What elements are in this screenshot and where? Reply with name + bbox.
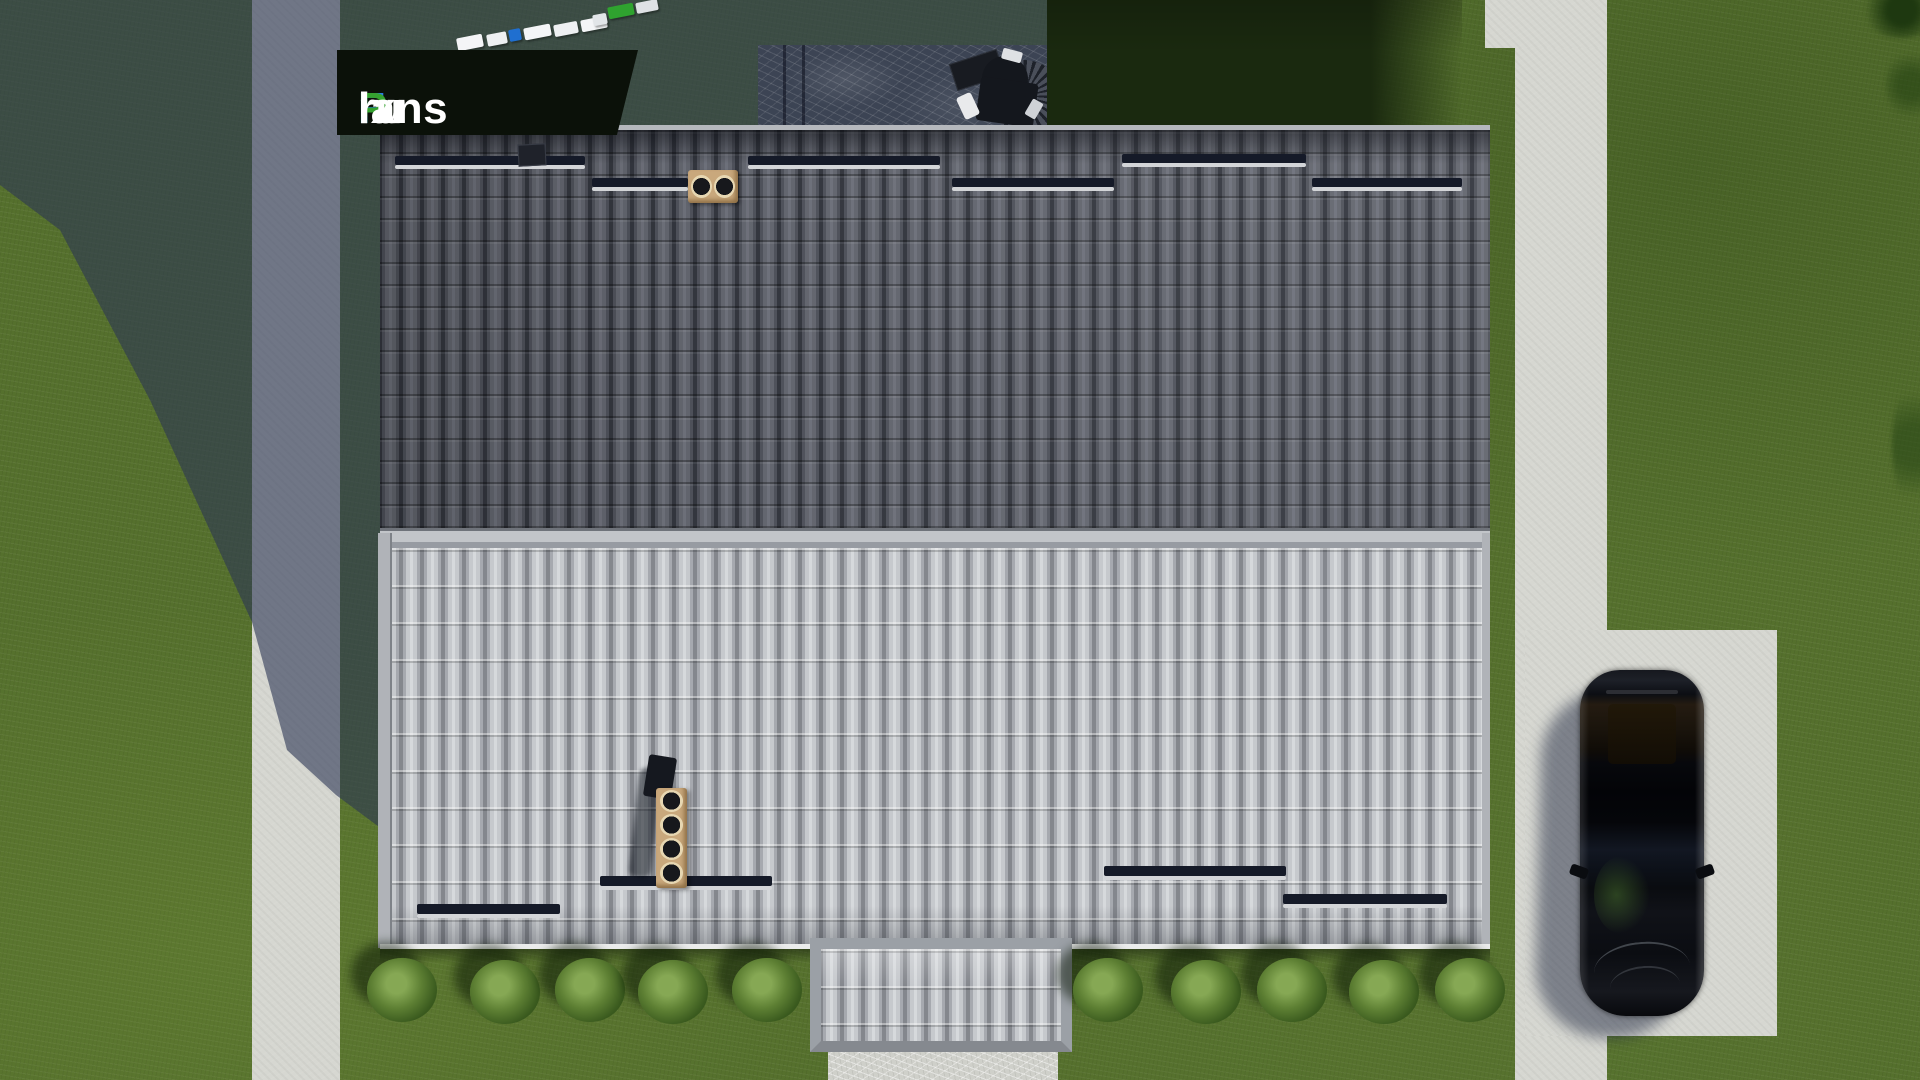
watermark-segment: ru (358, 84, 403, 134)
porch-extension-roof (810, 938, 1072, 1052)
snow-rail (592, 187, 688, 191)
roof-vent (517, 143, 546, 166)
car-windshield-reflection (1594, 856, 1650, 934)
snow-rail-shadow (592, 178, 688, 187)
snow-rail-shadow (417, 904, 560, 914)
snow-rail-shadow (1104, 866, 1286, 876)
path-stub-top-right (1485, 0, 1607, 48)
chimney-lower (656, 788, 687, 888)
chimney-upper (688, 170, 738, 203)
car-rear-window (1608, 704, 1676, 764)
roof-fascia-left (378, 533, 392, 948)
stone-walkway (828, 1052, 1058, 1080)
shrub (470, 960, 540, 1024)
snow-rail-shadow (1122, 154, 1306, 163)
roof-ridge-band (380, 528, 1490, 548)
shrub (732, 958, 802, 1022)
shaded-grass-strip (1047, 0, 1462, 132)
shrub (1435, 958, 1505, 1022)
snow-rail (1122, 163, 1306, 167)
patio-furniture-box (975, 76, 1039, 128)
shrub (1171, 960, 1241, 1024)
patio-joint (802, 45, 805, 132)
snow-rail (748, 165, 940, 169)
scene: FixPlans.ru (0, 0, 1920, 1080)
snow-rail-shadow (1283, 894, 1447, 904)
fence-block (508, 28, 522, 42)
shrub (1349, 960, 1419, 1024)
shrub (638, 960, 708, 1024)
snow-rail-shadow (1312, 178, 1462, 187)
snow-rail (952, 187, 1114, 191)
snow-rail-shadow (395, 156, 585, 165)
snow-rail-shadow (952, 178, 1114, 187)
chimney-flue (660, 838, 683, 860)
shrub (367, 958, 437, 1022)
chimney-flue (660, 790, 683, 812)
chimney-flue (691, 175, 712, 198)
car-trunk-line (1606, 690, 1678, 694)
snow-rail-shadow (748, 156, 940, 165)
roof-lower-light-tiles (380, 548, 1490, 948)
snow-rail (1283, 904, 1447, 908)
snow-rail (417, 914, 560, 918)
snow-rail (1312, 187, 1462, 191)
snow-rail (1104, 876, 1286, 880)
roof-fascia-right (1482, 533, 1490, 948)
chimney-flue (660, 862, 683, 884)
snow-rail (395, 165, 585, 169)
car (1580, 670, 1704, 1016)
shrub (1257, 958, 1327, 1022)
shrub (555, 958, 625, 1022)
chimney-flue (660, 814, 683, 836)
shrub (1073, 958, 1143, 1022)
chimney-flue (714, 175, 735, 198)
patio-joint (783, 45, 786, 132)
